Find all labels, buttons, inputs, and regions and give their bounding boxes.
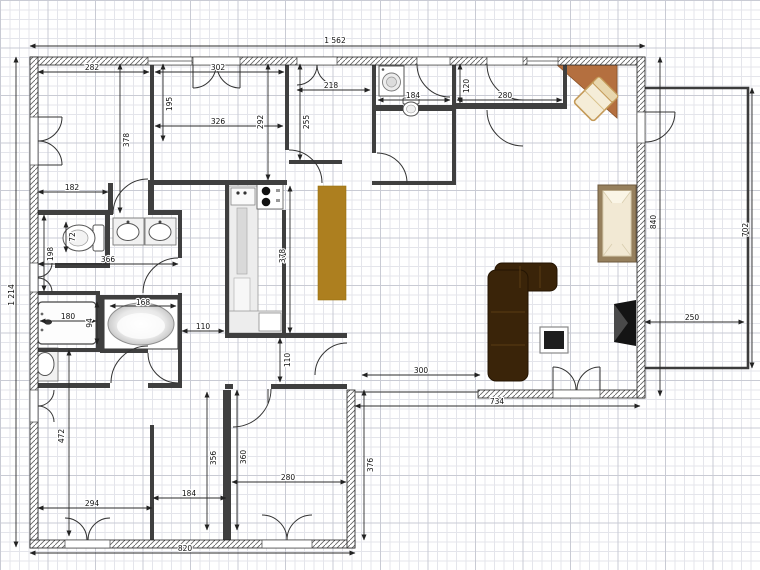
french-door-living — [553, 367, 600, 398]
door-closet — [487, 57, 523, 146]
door-bath2-side — [377, 153, 407, 183]
window-left-1 — [30, 117, 62, 165]
stove — [257, 184, 283, 209]
window-top-2 — [527, 57, 558, 65]
dim-bathtub: 168 — [136, 298, 151, 307]
dim-hall-top: 302 — [211, 63, 226, 72]
door-hall-living — [289, 150, 322, 183]
dim-room3-width: 218 — [324, 81, 339, 90]
dim-wc-width: 72 — [68, 232, 77, 242]
dim-bedroom1-width: 282 — [85, 63, 100, 72]
dim-room-br-width: 280 — [281, 473, 296, 482]
dim-closet-height: 120 — [462, 79, 471, 94]
door-bathtub-room — [148, 353, 178, 383]
dim-room-br-height: 360 — [239, 450, 248, 465]
door-bedroom1 — [113, 179, 148, 214]
dim-room-bm-height: 356 — [209, 451, 218, 466]
dim-total-width: 1 562 — [324, 36, 346, 45]
window-top-1 — [148, 57, 192, 65]
sofa — [488, 263, 557, 381]
dim-shower-height: 94 — [85, 318, 94, 328]
dim-hall-left: 195 — [165, 97, 174, 112]
door-bathroom-sink — [143, 258, 178, 293]
dim-wc-height: 198 — [46, 247, 55, 262]
floor-plan-canvas: 1 562 1 214 820 734 300 376 840 702 250 … — [0, 0, 760, 570]
dim-terrace-width: 250 — [685, 313, 700, 322]
dining-island — [318, 186, 346, 300]
dim-right-wall: 840 — [649, 215, 658, 230]
window-bottom-1 — [65, 518, 110, 548]
dim-living-opening: 300 — [414, 366, 429, 375]
dim-bedroom2-height: 472 — [57, 429, 66, 444]
dim-room3-height: 255 — [302, 115, 311, 130]
dim-living-bottom: 734 — [490, 397, 505, 406]
dim-bedroom1-height: 378 — [122, 133, 131, 148]
door-corridor-living — [315, 343, 347, 375]
floor-plan-drawing: 1 562 1 214 820 734 300 376 840 702 250 … — [0, 0, 760, 570]
dim-hallway-width: 110 — [196, 322, 211, 331]
washing-machine — [379, 66, 404, 96]
tv — [614, 300, 636, 346]
bed — [598, 185, 636, 262]
coffee-table — [540, 327, 568, 353]
terrace-door — [637, 112, 675, 143]
dim-wing-bottom: 820 — [178, 544, 193, 553]
dim-closet-width: 280 — [498, 91, 513, 100]
dim-bath1-width: 366 — [101, 255, 116, 264]
door-bath2-top — [417, 57, 450, 97]
dim-bath2-width: 184 — [406, 91, 421, 100]
dim-hall-right: 292 — [256, 115, 265, 130]
dim-bedroom2-width: 294 — [85, 499, 100, 508]
dim-wing-right: 376 — [366, 458, 375, 473]
dim-shower-width: 180 — [61, 312, 76, 321]
dim-room-bm-width: 184 — [182, 489, 197, 498]
window-left-3 — [30, 390, 54, 422]
entrance-double-door — [193, 57, 240, 88]
dim-vestibule: 182 — [65, 183, 80, 192]
dim-kitchen-height: 378 — [278, 249, 287, 264]
double-washbasin — [113, 218, 176, 245]
dim-total-height: 1 214 — [7, 284, 16, 306]
window-bottom-2 — [262, 515, 312, 548]
wall-toilet — [403, 98, 419, 116]
dim-terrace-height: 702 — [741, 223, 750, 238]
dim-hall-width: 326 — [211, 117, 226, 126]
window-left-2 — [30, 263, 52, 292]
kitchen-sink — [231, 188, 255, 205]
dim-corridor-height: 110 — [283, 353, 292, 368]
door-room-bm — [233, 389, 271, 427]
